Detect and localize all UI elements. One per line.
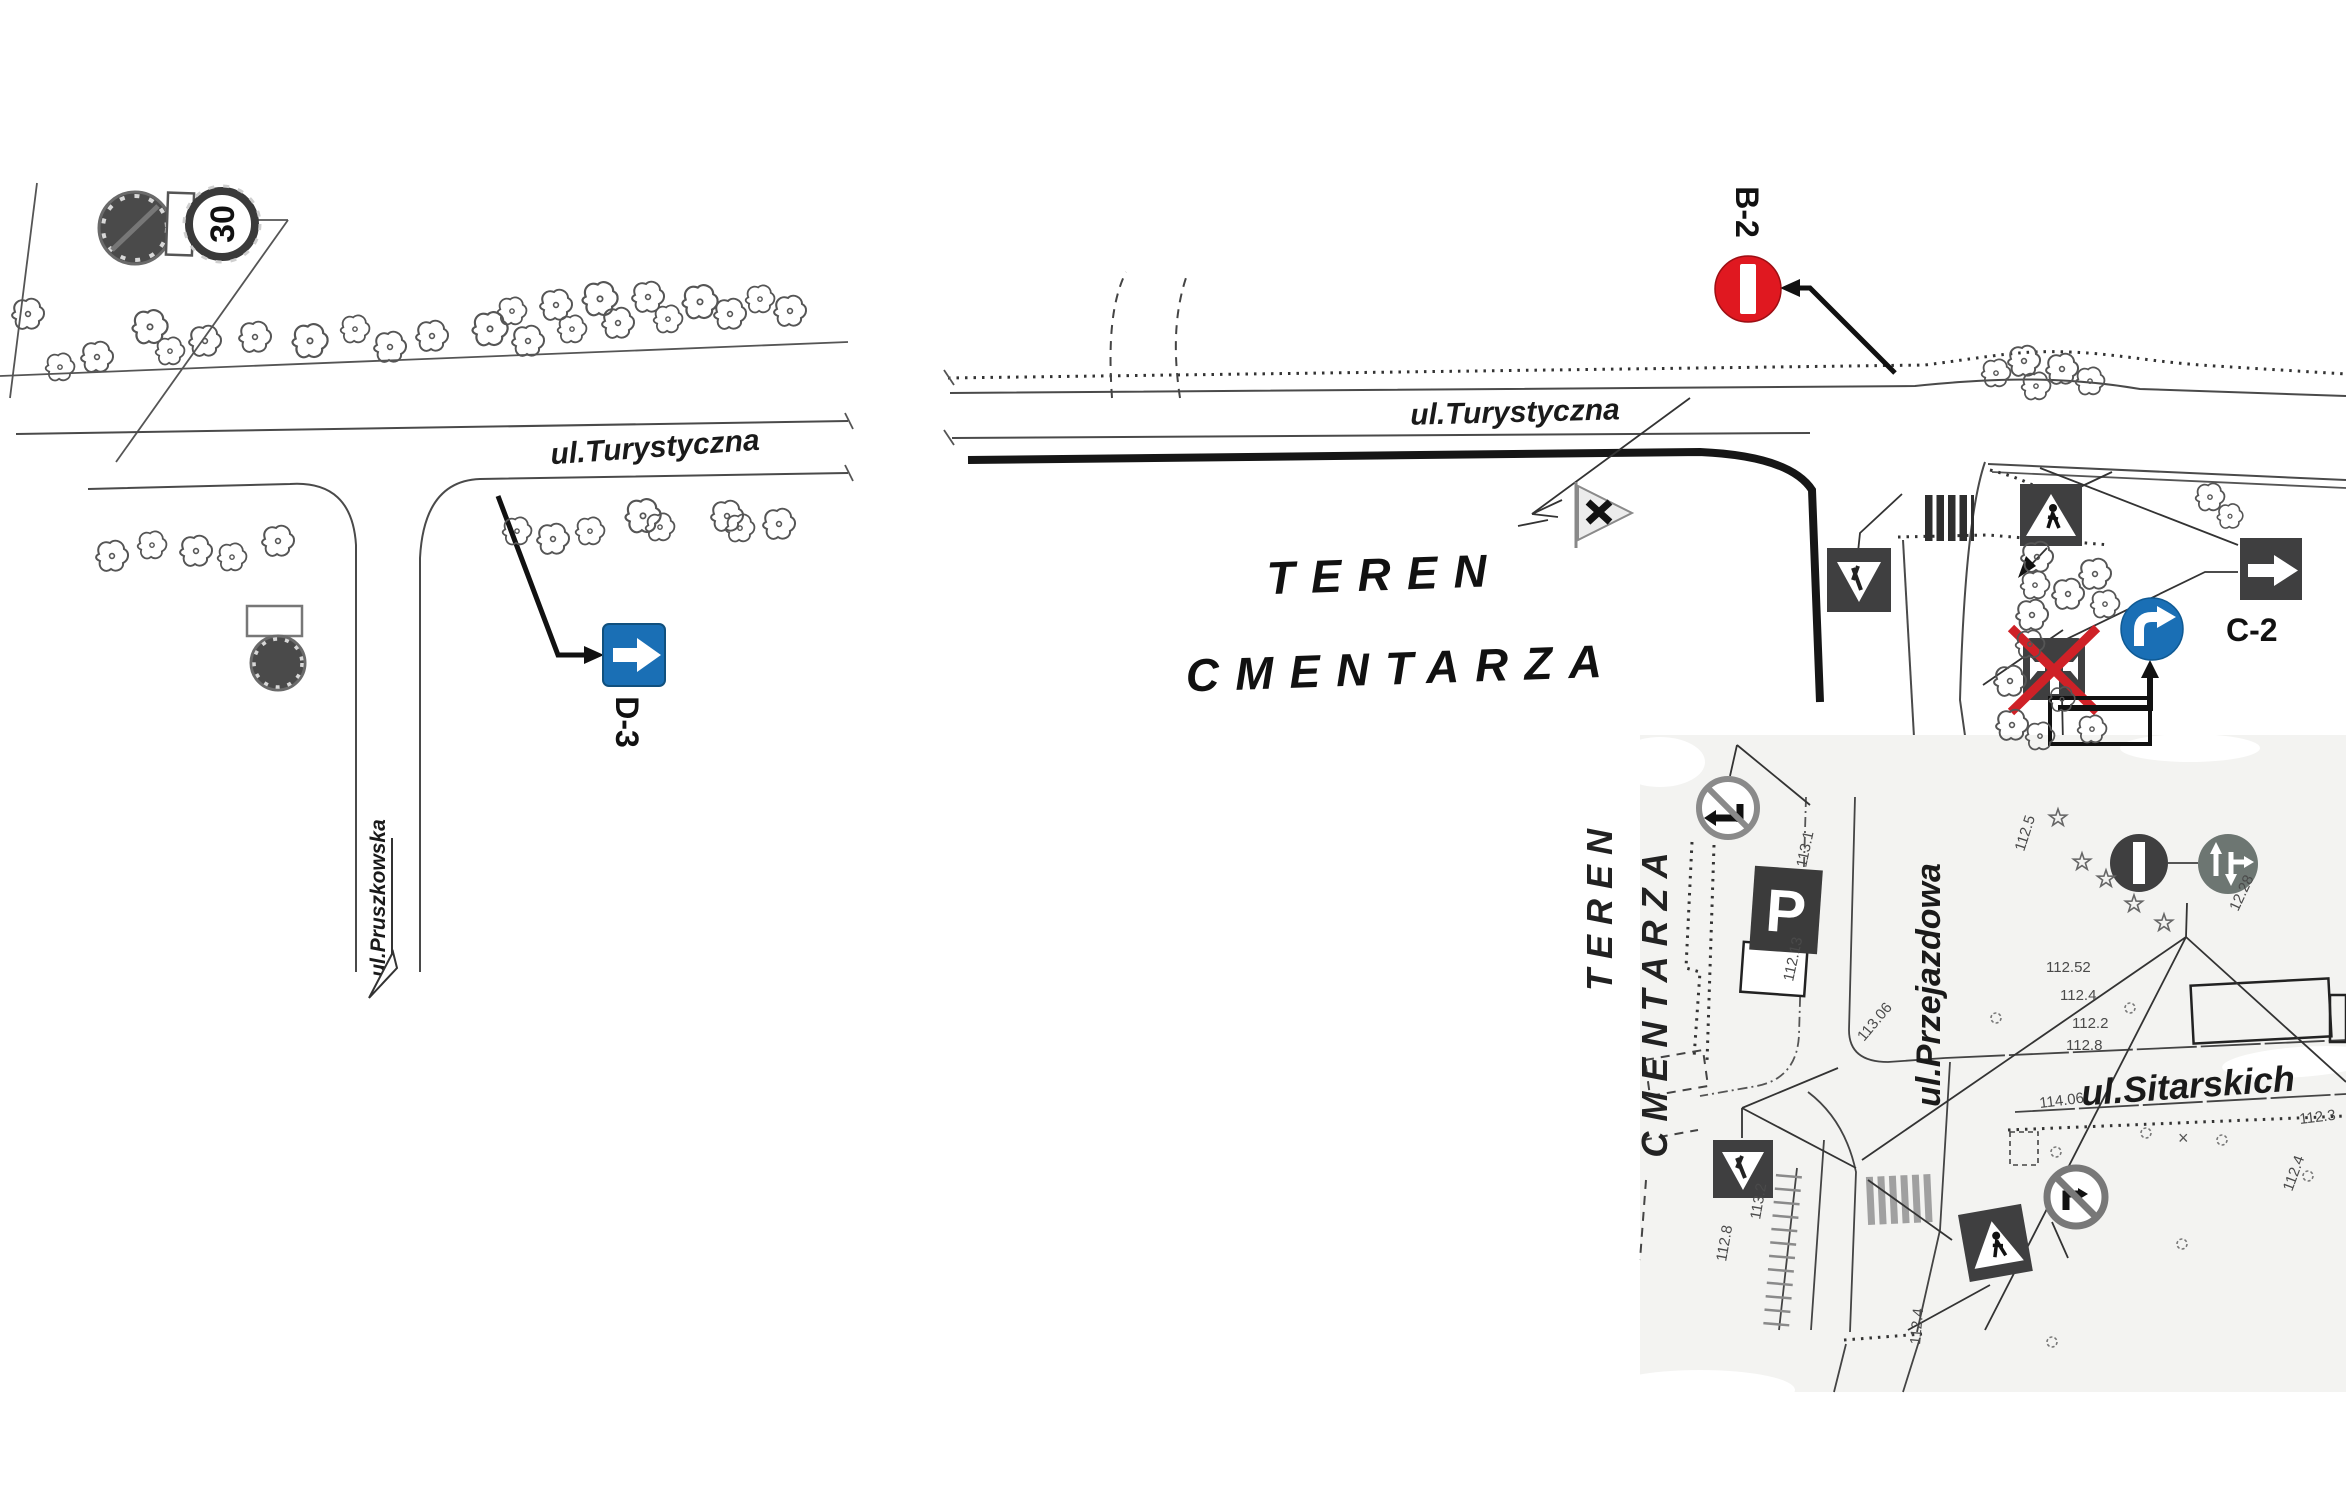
scan-white-patch-3 <box>1605 1370 1795 1410</box>
pedestrian-sign-main <box>2020 484 2082 546</box>
tree-symbol <box>96 541 128 571</box>
trees-layer <box>12 282 2243 750</box>
no-left-turn-sign <box>1699 779 1757 837</box>
left-plan: 30 D-3 ul.Turystyczna ul.Pruszkowska <box>0 183 853 998</box>
c2-sign-face <box>2121 598 2183 660</box>
inset-existing-b2-sign <box>2110 834 2168 892</box>
tree-symbol <box>1994 666 2026 696</box>
elevation-label: 112.2 <box>2072 1015 2108 1032</box>
ped-figure-head <box>2049 504 2057 512</box>
tree-symbol <box>81 342 113 372</box>
inset-area-line1: TEREN <box>1579 819 1620 991</box>
scan-white-patch-2 <box>2120 734 2260 762</box>
tree-symbol <box>774 296 806 326</box>
d3-arrow-shaft <box>613 648 639 662</box>
tree-symbol <box>2021 571 2050 598</box>
elevation-label: 112.52 <box>2046 959 2091 976</box>
tree-symbol <box>602 308 634 338</box>
existing-d3-sign <box>2240 538 2302 600</box>
tree-symbol <box>714 299 746 329</box>
tree-symbol <box>416 321 448 351</box>
elevation-label: 112.4 <box>2060 987 2096 1004</box>
road-mid-line <box>952 433 1810 438</box>
street-label-turystyczna-left: ul.Turystyczna <box>549 424 760 472</box>
tree-symbol <box>2016 600 2048 630</box>
tree-symbol <box>2046 354 2078 384</box>
boundary-dotted <box>948 352 2346 378</box>
plan-canvas: 30 D-3 ul.Turystyczna ul.Pruszkowska <box>0 0 2346 1487</box>
tree-symbol <box>239 322 271 352</box>
b2-leader-arrowhead <box>1780 279 1800 297</box>
d3-sign <box>603 624 665 686</box>
c2-sign <box>2121 598 2183 660</box>
tree-symbol <box>654 305 683 332</box>
tree-symbol <box>189 326 221 356</box>
road-lower-edge-a <box>1988 464 2346 480</box>
tree-symbol <box>2217 504 2243 528</box>
inset-map: P TEREN CMENTARZA ul.Przejazdowa <box>1579 698 2346 1410</box>
b2-bar <box>1740 264 1756 314</box>
road-end-ticks <box>845 413 853 481</box>
speed-limit-value: 30 <box>204 205 242 243</box>
tree-symbol <box>2196 483 2225 510</box>
tree-symbol <box>512 326 544 356</box>
tree-symbol <box>1982 359 2011 386</box>
flag-leader-arrow <box>1518 500 1562 526</box>
area-label-line2: CMENTARZA <box>1185 634 1618 701</box>
c2-code-label: C-2 <box>2226 612 2278 648</box>
driveway-dashed-right <box>1176 272 1188 398</box>
elevation-label: 112.8 <box>2066 1037 2102 1054</box>
tree-symbol <box>262 526 294 556</box>
building-outline <box>247 606 302 636</box>
tree-symbol <box>576 517 605 544</box>
tree-symbol <box>2052 579 2084 609</box>
b2-sign <box>1715 256 1781 322</box>
traffic-signage-plan: 30 D-3 ul.Turystyczna ul.Pruszkowska <box>0 0 2346 1487</box>
x-mark: × <box>2178 1128 2189 1148</box>
inset-b2-bar <box>2133 842 2145 884</box>
road-upper-edge-right <box>950 380 2346 396</box>
tree-symbol <box>293 324 328 357</box>
tree-symbol <box>2091 590 2120 617</box>
street-label-pruszkowska: ul.Pruszkowska <box>367 819 390 977</box>
existing-speed-sign-group: 30 <box>99 186 260 264</box>
tree-symbol <box>156 337 185 364</box>
b2-code-label: B-2 <box>1729 186 1765 238</box>
parking-letter: P <box>1764 877 1809 947</box>
b2-leader-arrow <box>1792 288 1895 373</box>
tree-symbol <box>138 531 167 558</box>
c2-leader-arrowhead <box>2141 660 2159 678</box>
driveway-dashed-left <box>1111 272 1126 398</box>
d3-leader-arrowhead <box>584 646 604 664</box>
tree-symbol <box>498 297 527 324</box>
tree-symbol <box>746 285 775 312</box>
tree-symbol <box>2022 372 2051 399</box>
area-label-line1: TEREN <box>1266 544 1504 604</box>
tree-symbol <box>218 543 247 570</box>
tree-symbol <box>558 315 587 342</box>
tree-symbol <box>46 353 75 380</box>
elevation-label: 112.4 <box>1907 1308 1927 1346</box>
existing-tree-disc <box>251 636 305 690</box>
inset-area-line2: CMENTARZA <box>1634 842 1675 1157</box>
d3-code-label: D-3 <box>609 696 645 748</box>
pedestrian-sign-inset <box>1958 1204 2033 1282</box>
tree-symbol <box>374 332 406 362</box>
tree-symbol <box>583 282 618 315</box>
street-label-przejazdowa: ul.Przejazdowa <box>1910 863 1948 1107</box>
tree-symbol <box>626 499 661 532</box>
tree-symbol <box>540 290 572 320</box>
tree-symbol <box>2008 346 2040 376</box>
tree-symbol <box>473 312 508 345</box>
scan-white-patch-4 <box>1615 737 1705 787</box>
yield-leader <box>1858 494 1902 552</box>
tree-symbol <box>726 514 755 541</box>
tree-row-line <box>0 342 848 376</box>
road-end-ticks-right <box>944 370 954 445</box>
d3-leader-arrow <box>498 496 588 655</box>
tree-symbol <box>2079 559 2111 589</box>
tree-symbol <box>537 524 569 554</box>
yield-sign-main <box>1827 548 1891 612</box>
tree-symbol <box>12 299 44 329</box>
x-marks-layer: × <box>2178 1128 2189 1148</box>
street-label-turystyczna-right: ul.Turystyczna <box>1410 393 1620 431</box>
boundary-line <box>10 183 37 398</box>
tree-symbol <box>341 315 370 342</box>
tree-symbol <box>683 285 718 318</box>
side-road-mid-edge <box>1903 540 1915 755</box>
tree-symbol <box>763 509 795 539</box>
existing-d3-arrow-shaft <box>2248 564 2276 577</box>
tree-symbol <box>180 536 212 566</box>
